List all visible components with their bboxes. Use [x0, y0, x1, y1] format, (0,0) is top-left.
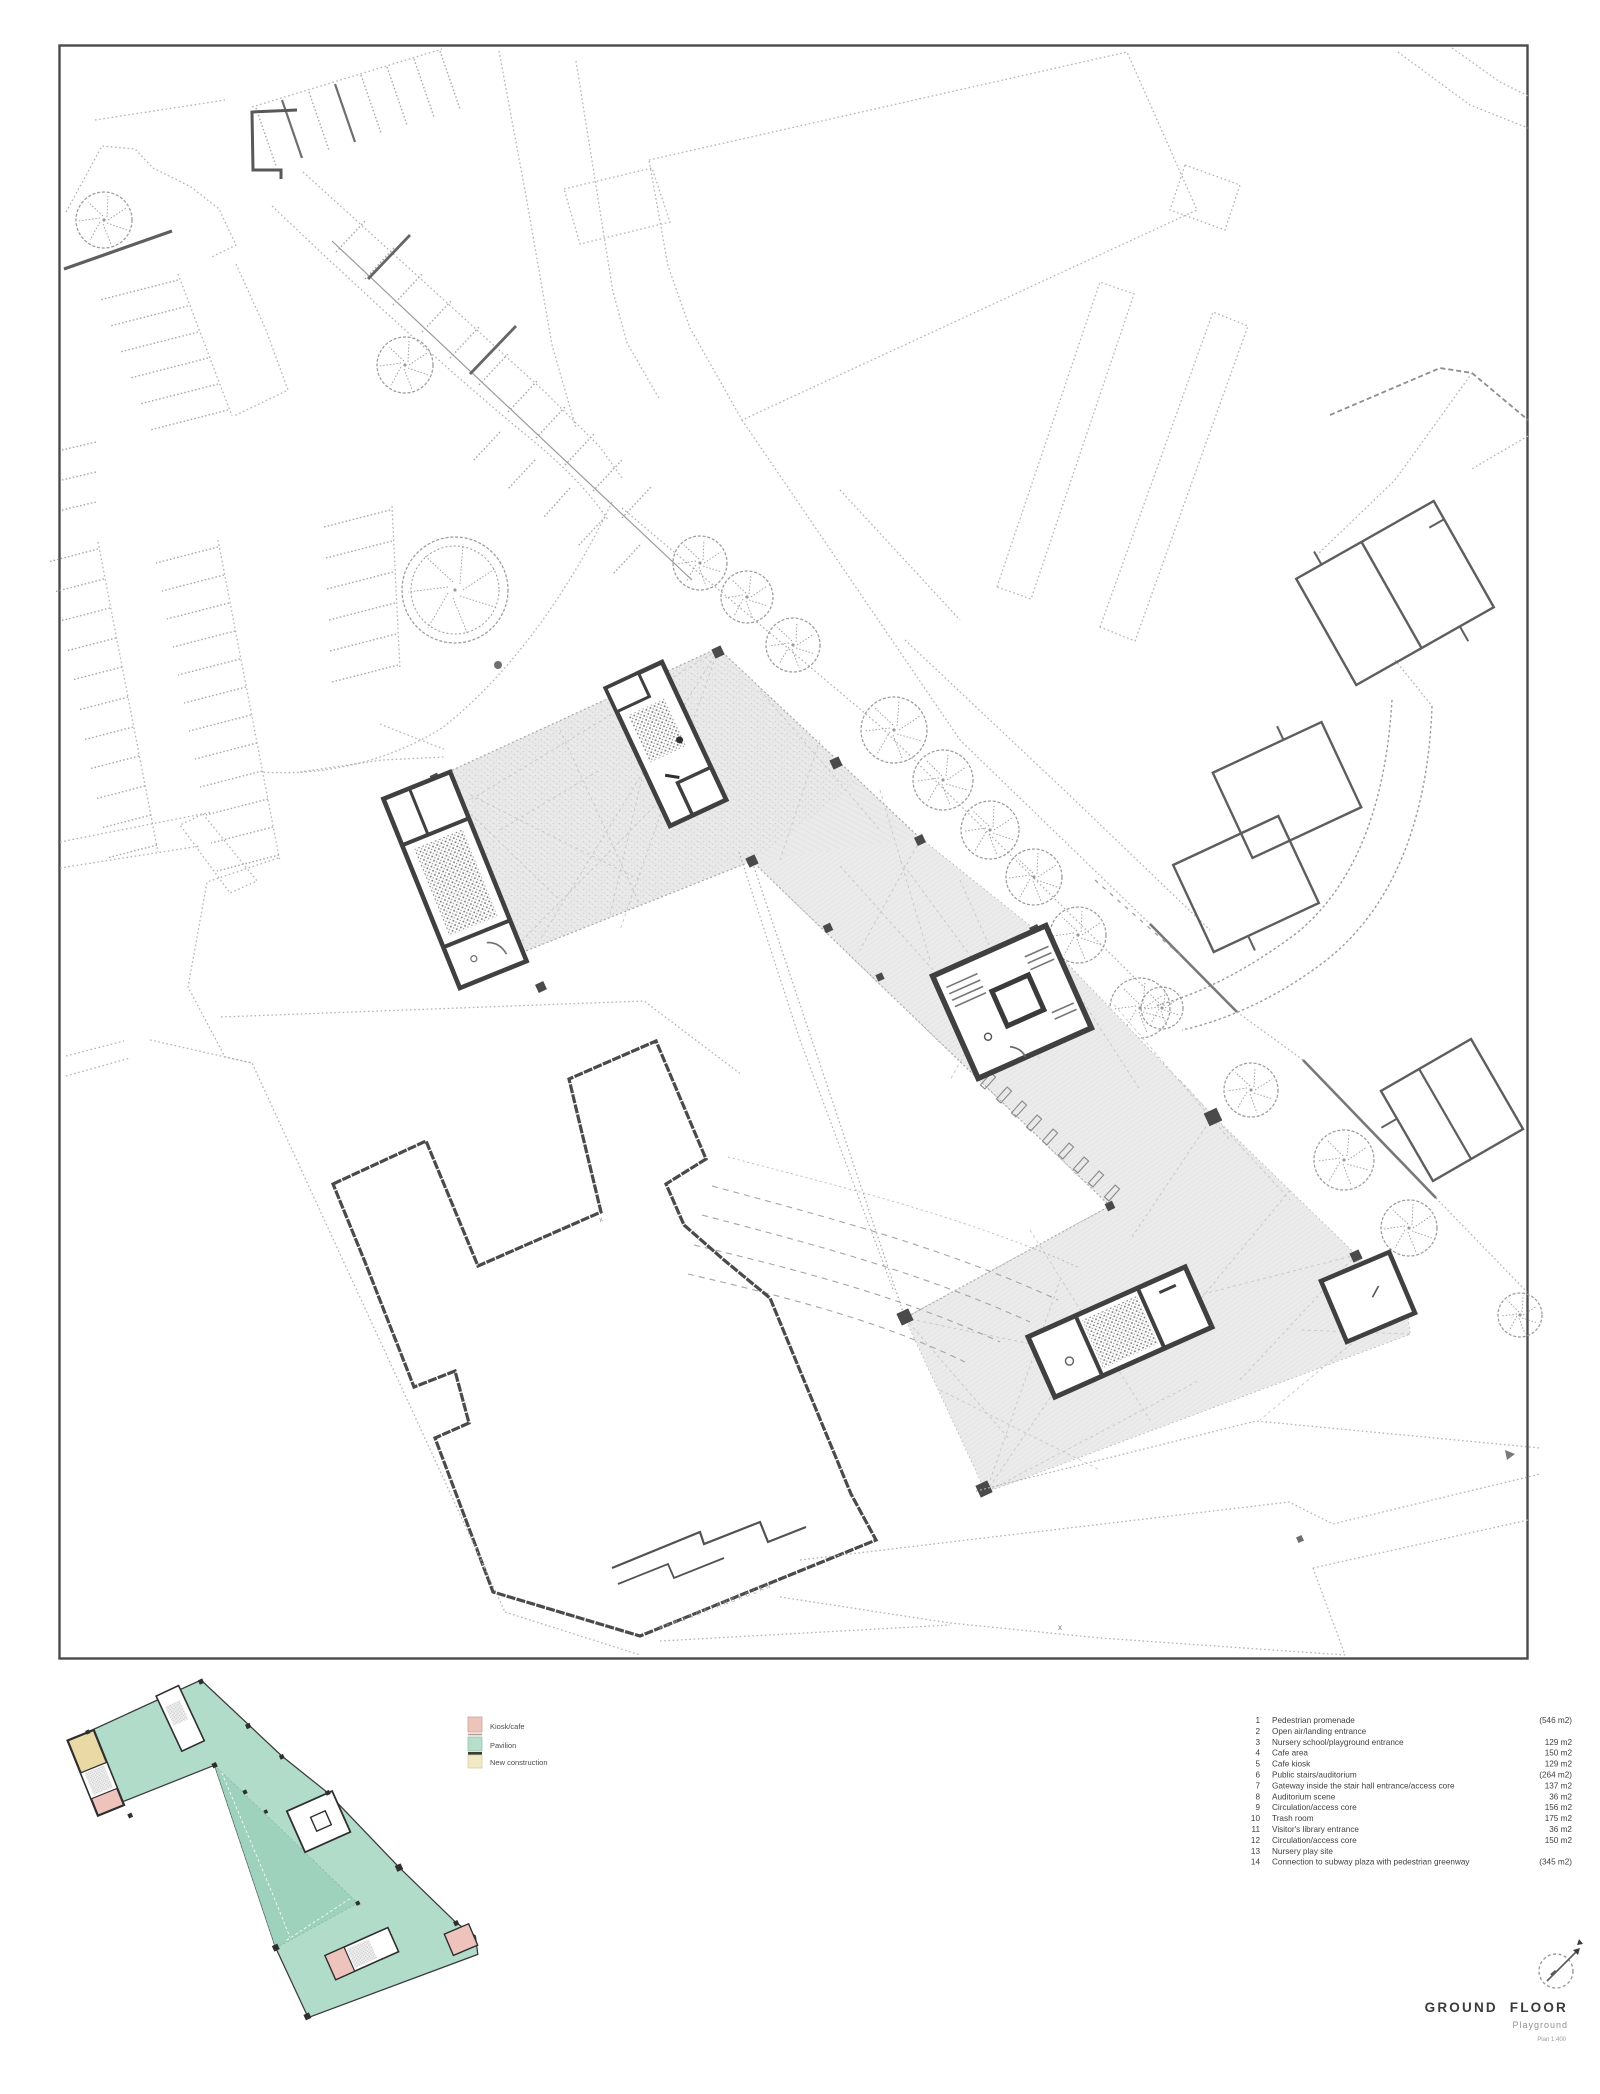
- svg-text:129 m2: 129 m2: [1545, 1760, 1573, 1769]
- svg-text:12: 12: [1251, 1836, 1261, 1845]
- svg-text:11: 11: [1252, 1825, 1261, 1834]
- svg-text:Nursery school/playground entr: Nursery school/playground entrance: [1272, 1738, 1404, 1747]
- svg-text:14: 14: [1251, 1858, 1261, 1867]
- svg-text:Visitor's library entrance: Visitor's library entrance: [1272, 1825, 1359, 1834]
- svg-text:36 m2: 36 m2: [1549, 1792, 1572, 1801]
- svg-text:Plan 1:400: Plan 1:400: [1537, 2037, 1566, 2043]
- svg-text:(546 m2): (546 m2): [1539, 1716, 1572, 1725]
- svg-text:1: 1: [1255, 1716, 1260, 1725]
- svg-text:Circulation/access core: Circulation/access core: [1272, 1836, 1357, 1845]
- svg-text:(264 m2): (264 m2): [1539, 1771, 1572, 1780]
- svg-text:36 m2: 36 m2: [1549, 1825, 1572, 1834]
- svg-text:Connection to subway plaza wit: Connection to subway plaza with pedestri…: [1272, 1858, 1470, 1867]
- svg-text:4: 4: [1255, 1749, 1260, 1758]
- svg-text:Pedestrian promenade: Pedestrian promenade: [1272, 1716, 1355, 1725]
- svg-text:x: x: [1058, 1623, 1062, 1632]
- svg-text:7: 7: [1255, 1781, 1260, 1790]
- svg-text:Open air/landing entrance: Open air/landing entrance: [1272, 1727, 1367, 1736]
- svg-text:Kiosk/cafe: Kiosk/cafe: [490, 1722, 525, 1731]
- svg-text:150 m2: 150 m2: [1545, 1749, 1573, 1758]
- svg-text:8: 8: [1255, 1792, 1260, 1801]
- svg-text:Public stairs/auditorium: Public stairs/auditorium: [1272, 1771, 1357, 1780]
- svg-text:GROUND FLOOR: GROUND FLOOR: [1425, 2000, 1568, 2015]
- svg-text:2: 2: [1255, 1727, 1260, 1736]
- svg-text:Playground: Playground: [1512, 2020, 1568, 2030]
- svg-text:137 m2: 137 m2: [1545, 1781, 1573, 1790]
- svg-text:150 m2: 150 m2: [1545, 1836, 1573, 1845]
- svg-text:(345 m2): (345 m2): [1539, 1858, 1572, 1867]
- svg-text:13: 13: [1251, 1847, 1261, 1856]
- svg-text:129 m2: 129 m2: [1545, 1738, 1573, 1747]
- svg-text:5: 5: [1255, 1760, 1260, 1769]
- svg-text:156 m2: 156 m2: [1545, 1803, 1573, 1812]
- svg-text:175 m2: 175 m2: [1545, 1814, 1573, 1823]
- svg-text:9: 9: [1255, 1803, 1260, 1812]
- svg-text:Nursery play site: Nursery play site: [1272, 1847, 1333, 1856]
- svg-text:Circulation/access core: Circulation/access core: [1272, 1803, 1357, 1812]
- svg-text:Cafe area: Cafe area: [1272, 1749, 1308, 1758]
- svg-text:New construction: New construction: [490, 1758, 548, 1767]
- svg-text:10: 10: [1251, 1814, 1261, 1823]
- svg-text:Pavilion: Pavilion: [490, 1741, 516, 1750]
- svg-text:3: 3: [1255, 1738, 1260, 1747]
- svg-text:Trash room: Trash room: [1272, 1814, 1314, 1823]
- svg-text:Gateway inside the stair hall: Gateway inside the stair hall entrance/a…: [1272, 1781, 1455, 1790]
- svg-text:Auditorium scene: Auditorium scene: [1272, 1792, 1336, 1801]
- svg-text:6: 6: [1255, 1771, 1260, 1780]
- svg-text:Cafe kiosk: Cafe kiosk: [1272, 1760, 1311, 1769]
